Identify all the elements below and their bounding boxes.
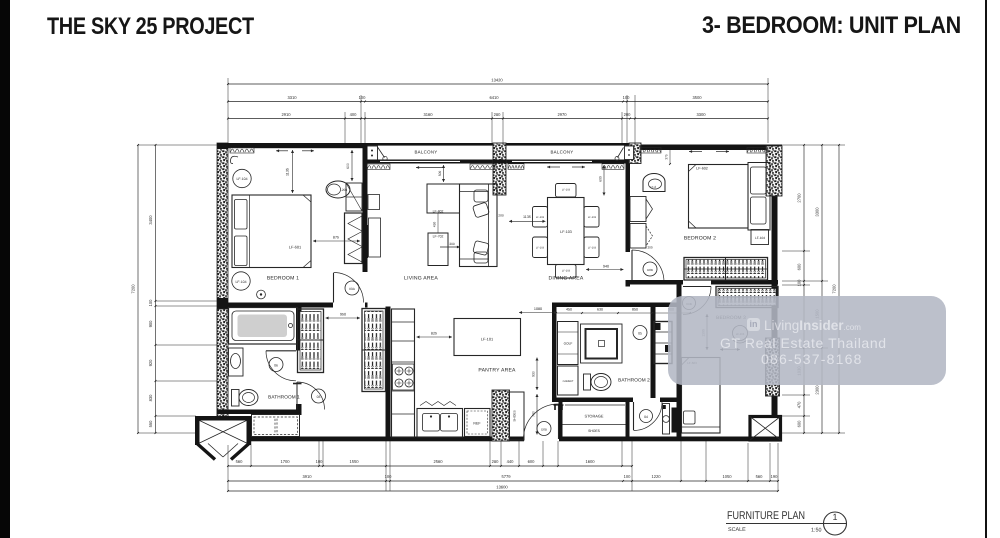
svg-text:FURNITURE PLAN: FURNITURE PLAN [727, 510, 805, 522]
svg-text:LF-104: LF-104 [235, 280, 246, 284]
svg-text:280: 280 [498, 214, 504, 218]
svg-text:SHOES: SHOES [588, 429, 601, 433]
svg-text:LF-103: LF-103 [560, 230, 572, 234]
svg-text:3300: 3300 [815, 207, 820, 217]
svg-text:LF-203: LF-203 [536, 216, 545, 219]
svg-text:3400: 3400 [148, 215, 153, 225]
svg-text:950: 950 [340, 313, 346, 317]
svg-text:7200: 7200 [131, 284, 136, 294]
svg-text:400: 400 [350, 112, 358, 117]
svg-text:600: 600 [797, 420, 802, 428]
svg-text:2910: 2910 [281, 112, 291, 117]
svg-text:BEDROOM 2: BEDROOM 2 [684, 236, 716, 242]
svg-text:SHOES: SHOES [513, 410, 517, 421]
svg-text:500: 500 [438, 171, 442, 177]
svg-text:200: 200 [624, 112, 632, 117]
svg-text:2700: 2700 [797, 193, 802, 203]
svg-text:13420: 13420 [491, 78, 503, 83]
svg-text:825: 825 [431, 332, 437, 336]
svg-text:6410: 6410 [489, 95, 499, 100]
svg-text:03: 03 [317, 395, 321, 399]
svg-text:1080: 1080 [534, 307, 542, 311]
svg-text:3310: 3310 [287, 95, 297, 100]
svg-text:1550: 1550 [349, 459, 359, 464]
svg-text:PANTRY AREA: PANTRY AREA [478, 368, 516, 374]
svg-text:1: 1 [832, 512, 837, 522]
svg-text:STORAGE: STORAGE [585, 414, 604, 419]
svg-text:280: 280 [492, 459, 500, 464]
svg-text:375: 375 [665, 154, 669, 160]
svg-text:BALCONY: BALCONY [414, 150, 437, 155]
svg-text:450: 450 [433, 222, 437, 228]
svg-text:2560: 2560 [433, 459, 443, 464]
svg-text:1135: 1135 [523, 215, 531, 219]
svg-text:875: 875 [333, 236, 339, 240]
svg-text:06: 06 [274, 363, 278, 367]
svg-text:450: 450 [566, 308, 572, 312]
svg-text:280: 280 [494, 112, 502, 117]
svg-text:600: 600 [346, 163, 350, 169]
svg-text:3300: 3300 [696, 112, 706, 117]
svg-text:04: 04 [644, 415, 648, 419]
svg-text:5779: 5779 [501, 474, 511, 479]
svg-text:600: 600 [797, 263, 802, 271]
svg-text:LIVING AREA: LIVING AREA [404, 276, 438, 282]
svg-text:LF-203: LF-203 [536, 246, 545, 249]
svg-text:900: 900 [148, 320, 153, 328]
svg-text:LF-601: LF-601 [289, 245, 301, 250]
svg-text:03A: 03A [349, 287, 356, 291]
svg-text:LF-802: LF-802 [433, 210, 444, 214]
svg-text:440: 440 [507, 459, 515, 464]
svg-text:100: 100 [359, 95, 367, 100]
svg-text:3500: 3500 [692, 95, 702, 100]
svg-text:100: 100 [623, 95, 631, 100]
svg-text:LF-104: LF-104 [755, 236, 765, 240]
svg-text:LF-203: LF-203 [588, 216, 597, 219]
svg-text:1135: 1135 [286, 168, 290, 176]
svg-text:BATHROOM 1: BATHROOM 1 [268, 395, 300, 400]
svg-text:LF-203: LF-203 [562, 189, 571, 192]
svg-text:DINING AREA: DINING AREA [548, 276, 583, 282]
svg-text:LF-104: LF-104 [236, 177, 247, 181]
svg-text:300: 300 [449, 242, 455, 246]
svg-text:LF-602: LF-602 [696, 167, 708, 171]
svg-text:13600: 13600 [496, 485, 508, 490]
svg-text:600: 600 [599, 176, 603, 182]
svg-text:560: 560 [756, 474, 764, 479]
svg-text:D0B: D0B [541, 427, 547, 431]
svg-text:600: 600 [528, 459, 536, 464]
svg-text:100: 100 [385, 474, 393, 479]
svg-text:100: 100 [316, 459, 324, 464]
svg-text:1700: 1700 [280, 459, 290, 464]
svg-text:SCALE: SCALE [728, 527, 746, 533]
svg-text:GOLF: GOLF [564, 342, 573, 346]
svg-text:3910: 3910 [302, 474, 312, 479]
svg-text:LF-203: LF-203 [562, 270, 571, 273]
svg-text:190: 190 [771, 474, 779, 479]
svg-text:LF-101: LF-101 [481, 337, 493, 342]
svg-text:BATHROOM 2: BATHROOM 2 [618, 378, 650, 383]
svg-text:920: 920 [148, 359, 153, 367]
svg-text:1220: 1220 [651, 474, 661, 479]
svg-text:100: 100 [797, 279, 802, 287]
svg-text:BALCONY: BALCONY [550, 150, 573, 155]
svg-text:BEDROOM 1: BEDROOM 1 [267, 276, 299, 282]
svg-text:LF-203: LF-203 [588, 246, 597, 249]
svg-text:3160: 3160 [423, 112, 433, 117]
svg-text:630: 630 [597, 308, 603, 312]
svg-text:100: 100 [148, 299, 153, 307]
svg-text:LF-702: LF-702 [433, 235, 444, 239]
svg-text:2300: 2300 [815, 385, 820, 395]
svg-text:REF: REF [473, 422, 481, 426]
svg-text:940: 940 [603, 264, 609, 268]
svg-text:1:50: 1:50 [811, 528, 822, 534]
svg-text:850: 850 [632, 308, 638, 312]
svg-text:200: 200 [647, 246, 652, 250]
svg-text:1600: 1600 [585, 459, 595, 464]
svg-text:D0B: D0B [647, 268, 653, 272]
svg-text:2970: 2970 [557, 112, 567, 117]
svg-text:100: 100 [624, 474, 632, 479]
svg-text:560: 560 [236, 459, 244, 464]
svg-text:930: 930 [532, 371, 536, 377]
svg-text:550: 550 [148, 420, 153, 428]
svg-text:05: 05 [638, 331, 642, 335]
svg-text:LF-2: LF-2 [650, 185, 657, 189]
svg-text:830: 830 [148, 394, 153, 402]
svg-text:7200: 7200 [832, 284, 837, 294]
svg-text:470: 470 [797, 401, 802, 409]
svg-text:CABINET: CABINET [563, 380, 574, 383]
svg-text:1050: 1050 [722, 474, 732, 479]
